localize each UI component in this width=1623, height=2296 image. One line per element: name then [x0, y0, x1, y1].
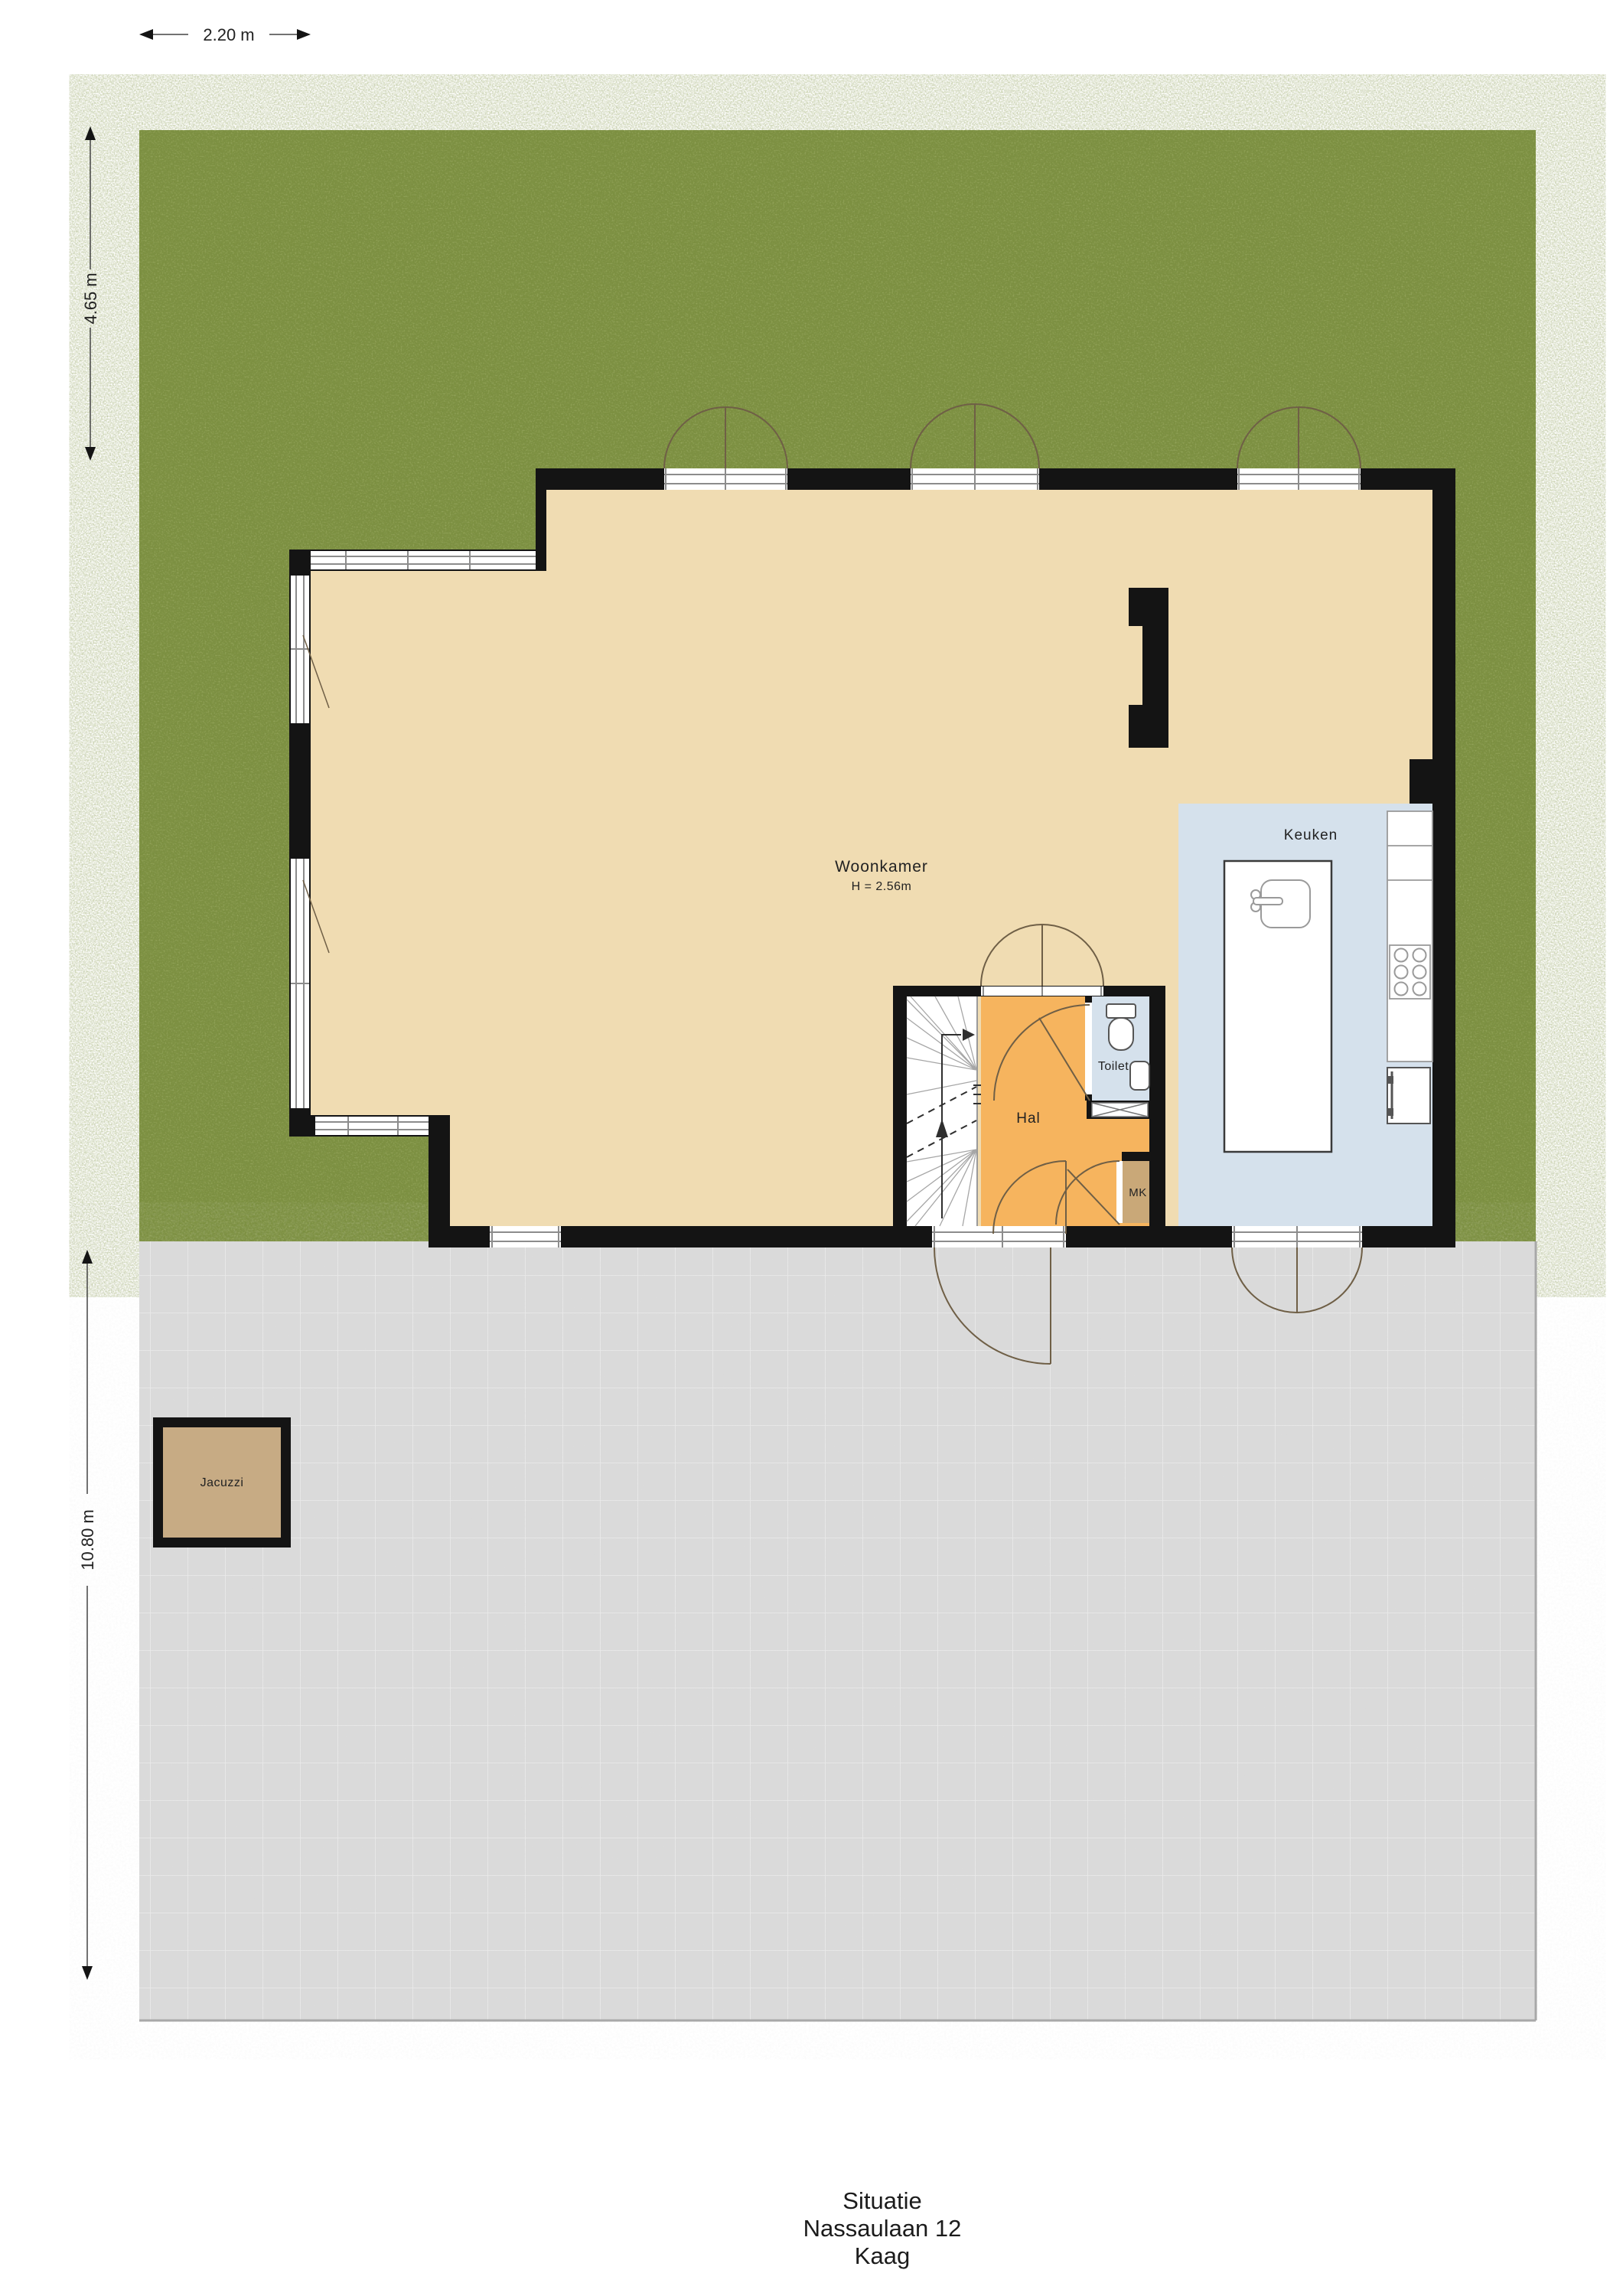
dimension-left-lower-label: 10.80 m [78, 1509, 97, 1570]
wall-top-1 [536, 468, 664, 490]
keuken-label: Keuken [1284, 827, 1338, 843]
french-door-opening-2 [911, 468, 1039, 490]
wall-kitchen-stub [1410, 759, 1432, 804]
french-door-opening-3 [1237, 468, 1361, 490]
wall-bay-connector [429, 1115, 450, 1247]
wall-bottom-4 [1362, 1226, 1455, 1247]
jacuzzi-label: Jacuzzi [200, 1476, 244, 1489]
wall-stairs-left [893, 986, 907, 1226]
woonkamer-height-note: H = 2.56m [852, 880, 912, 893]
wall-right [1432, 468, 1455, 1247]
title-line-1: Situatie [842, 2187, 921, 2214]
bay-left-window-upper [291, 576, 309, 723]
french-door-opening-1 [664, 468, 787, 490]
hal-label: Hal [1016, 1110, 1041, 1127]
situation-floorplan-page: Jacuzzi [0, 0, 1623, 2296]
toilet-door-strip [1085, 1003, 1092, 1094]
bay-top-window [311, 551, 536, 569]
stove-hob [1390, 945, 1430, 999]
toilet-label: Toilet [1098, 1060, 1129, 1073]
pavement-texture [139, 1241, 1536, 2020]
bay-bottom-window [315, 1117, 429, 1135]
toilet-vent [1092, 1103, 1148, 1117]
toilet-basin [1130, 1062, 1149, 1090]
wall-mk-stub [1122, 1152, 1165, 1161]
woonkamer-label: Woonkamer [835, 858, 928, 876]
floorplan-canvas: Jacuzzi [0, 0, 1623, 2296]
mk-label: MK [1129, 1186, 1147, 1199]
front-door-threshold [932, 1226, 1066, 1247]
kitchen-counter [1387, 811, 1432, 1062]
terrace-door-threshold [1232, 1226, 1362, 1247]
title-line-3: Kaag [855, 2242, 910, 2269]
jacuzzi: Jacuzzi [153, 1417, 291, 1548]
bay-left-window-lower [291, 859, 309, 1108]
mk-door-strip [1116, 1161, 1123, 1223]
wall-bottom-3 [1066, 1226, 1232, 1247]
wall-toilet-door-stub-top [1085, 996, 1092, 1003]
hal-door-threshold [981, 987, 1103, 996]
wall-top-3 [1039, 468, 1237, 490]
title-line-2: Nassaulaan 12 [803, 2215, 962, 2242]
kitchen-appliance [1387, 1068, 1430, 1124]
wall-bottom-2 [561, 1226, 932, 1247]
dimension-left-upper-label: 4.65 m [81, 272, 100, 324]
wall-top-2 [787, 468, 911, 490]
bottom-wall-window [490, 1226, 561, 1247]
toilet-wc [1106, 1004, 1136, 1050]
dimension-top-label: 2.20 m [203, 25, 254, 44]
